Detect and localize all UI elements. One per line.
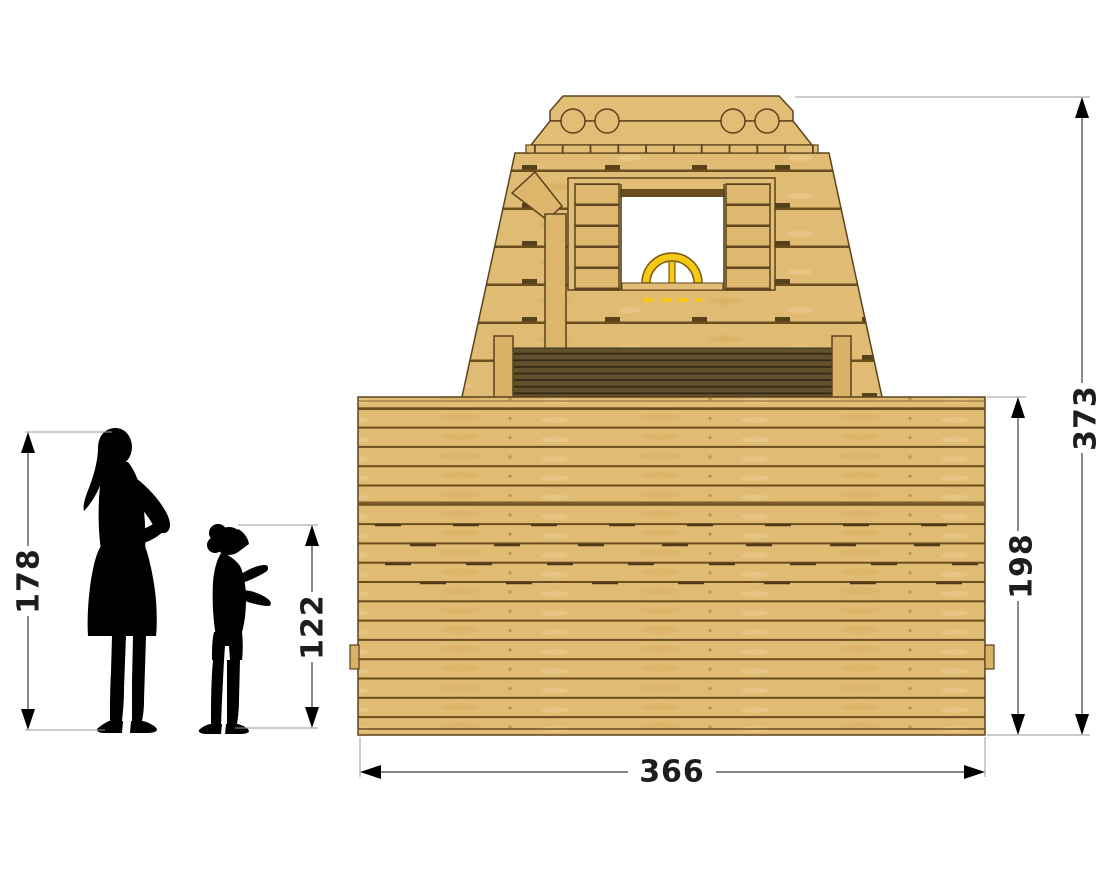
arrow-right-icon xyxy=(964,765,985,779)
window-sill xyxy=(622,283,723,290)
adult-silhouette-icon xyxy=(84,428,170,733)
adult-torso xyxy=(99,462,146,550)
steering-wheel-spoke xyxy=(669,259,675,285)
deck-post-left xyxy=(494,336,513,398)
dim-total-height: 373 xyxy=(1068,97,1104,735)
dim-width: 366 xyxy=(360,754,985,790)
scale-figures xyxy=(84,428,271,734)
play-structure xyxy=(350,96,994,735)
adult-leg-left xyxy=(110,636,126,721)
dim-wall-height: 198 xyxy=(1004,397,1040,735)
child-hair-2 xyxy=(207,537,223,553)
deck-post-right xyxy=(832,336,851,398)
window-assembly xyxy=(568,178,775,300)
roof-rail xyxy=(526,145,818,153)
arrow-up-icon xyxy=(1011,397,1025,418)
dim-child-height: 122 xyxy=(296,525,331,728)
front-wall-panel xyxy=(358,397,985,735)
child-torso xyxy=(213,552,246,636)
cap-circle-4 xyxy=(755,109,779,133)
total-height-label: 373 xyxy=(1069,385,1104,451)
adult-leg-right xyxy=(132,636,146,721)
arrow-up-icon xyxy=(1075,97,1089,118)
child-shoe-back xyxy=(199,724,222,734)
child-height-label: 122 xyxy=(296,594,331,660)
dimension-diagram: 178 122 373 198 xyxy=(0,0,1110,879)
cap-circle-2 xyxy=(595,109,619,133)
child-leg-back xyxy=(211,660,224,724)
arrow-down-icon xyxy=(21,709,35,730)
slatted-band xyxy=(505,348,845,398)
adult-shoe-left xyxy=(97,721,123,733)
arrow-up-icon xyxy=(305,525,319,546)
window-shutter-left xyxy=(575,184,619,290)
arrow-up-icon xyxy=(21,432,35,453)
child-shorts xyxy=(212,632,243,660)
cap-circle-1 xyxy=(561,109,585,133)
diagram-canvas: 178 122 373 198 xyxy=(0,0,1110,879)
arrow-down-icon xyxy=(305,707,319,728)
wall-tab-right xyxy=(985,645,994,669)
width-label: 366 xyxy=(639,755,705,790)
front-wall xyxy=(350,397,994,735)
dim-adult-height: 178 xyxy=(12,432,47,730)
wall-height-label: 198 xyxy=(1005,533,1040,599)
child-leg-front xyxy=(227,660,240,724)
child-arm-upper xyxy=(240,565,268,583)
wall-tab-left xyxy=(350,645,359,669)
adult-skirt xyxy=(88,546,157,636)
arrow-down-icon xyxy=(1075,714,1089,735)
window-lintel xyxy=(620,189,725,197)
arrow-down-icon xyxy=(1011,714,1025,735)
arrow-left-icon xyxy=(360,765,381,779)
adult-height-label: 178 xyxy=(12,548,47,614)
adult-shoe-right xyxy=(130,721,157,733)
cap-circle-3 xyxy=(721,109,745,133)
child-shoe-front xyxy=(225,724,249,734)
child-silhouette-icon xyxy=(199,524,271,734)
window-shutter-right xyxy=(726,184,770,290)
child-face xyxy=(238,529,249,552)
